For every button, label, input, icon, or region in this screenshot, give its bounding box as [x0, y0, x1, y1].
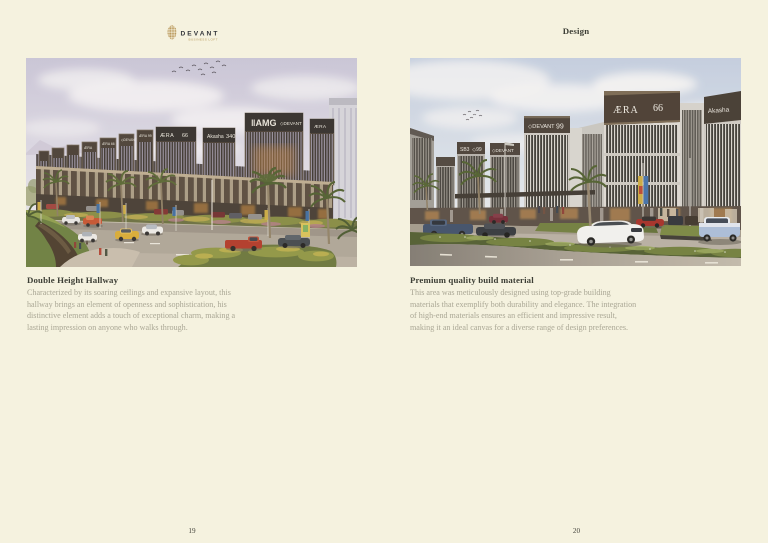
svg-text:BUSINESS LOFT: BUSINESS LOFT [189, 37, 218, 41]
